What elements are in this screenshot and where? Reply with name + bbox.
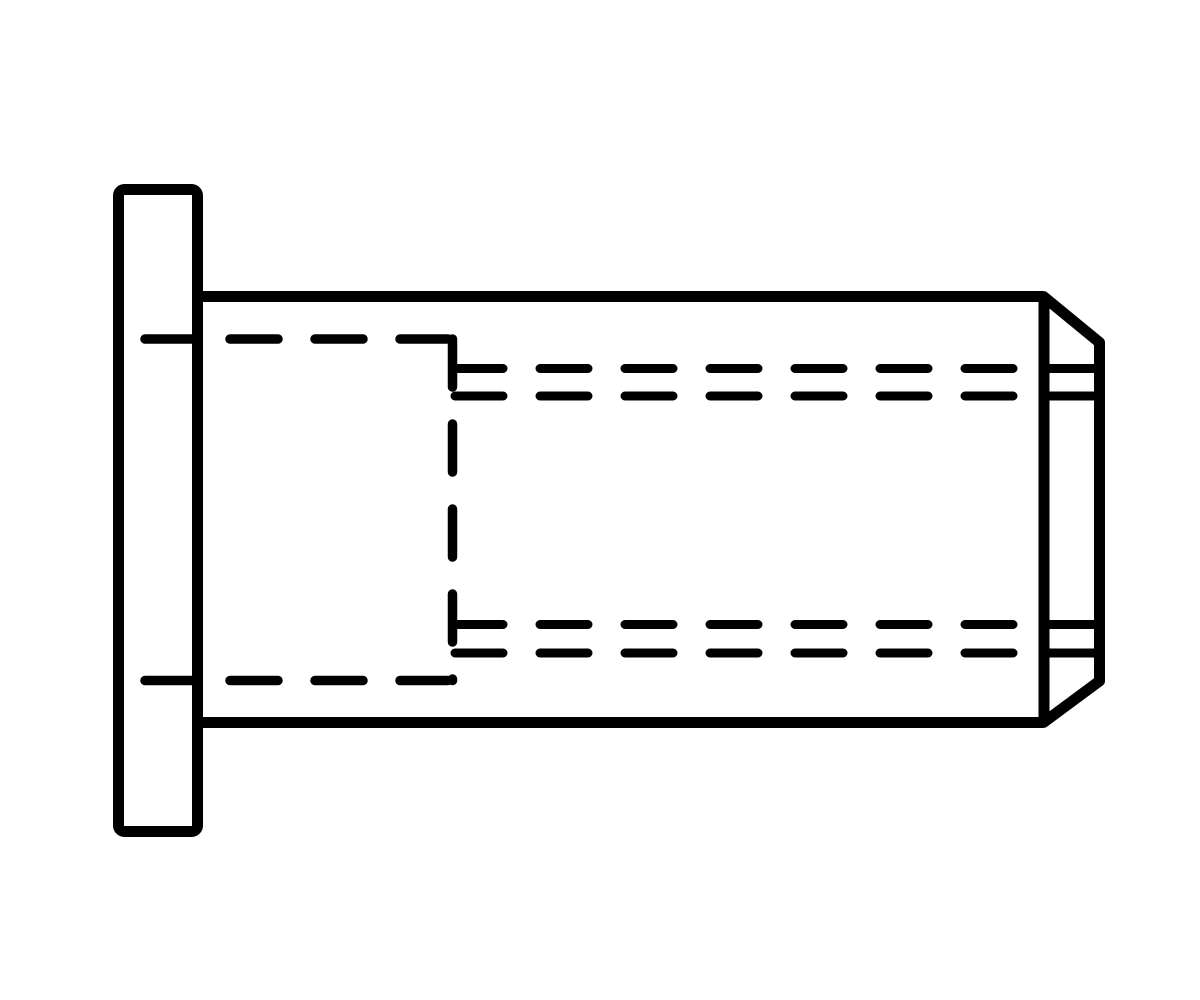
body-outline [197, 297, 1100, 723]
flange-head-outline [119, 190, 198, 832]
drawing-canvas [0, 0, 1200, 1000]
technical-drawing [0, 0, 1200, 1000]
